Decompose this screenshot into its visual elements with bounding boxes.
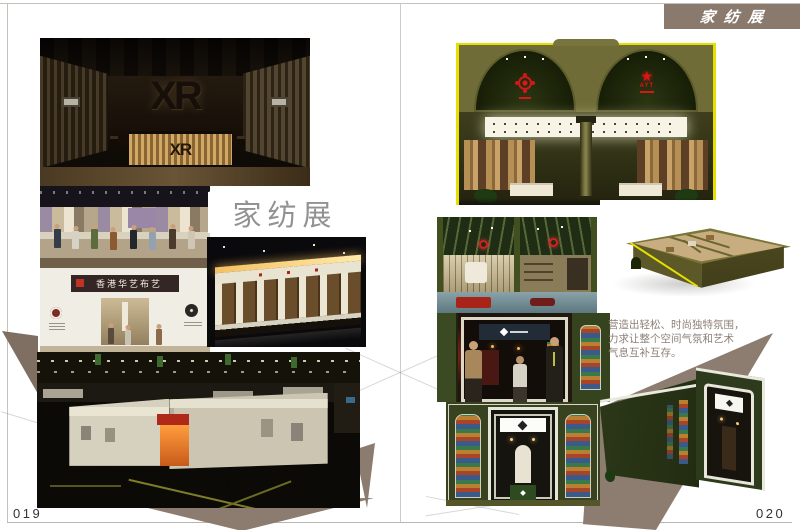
brand-logo-right: [185, 304, 198, 317]
visitor-figure: [546, 346, 563, 402]
entrance-arch: [704, 383, 754, 487]
dark-ceiling: [40, 186, 210, 207]
model-arch-opening: [631, 257, 641, 269]
booth-top-band: [169, 399, 327, 407]
wall-graphics: [261, 419, 273, 437]
hall-lights: [223, 246, 225, 248]
green-wall-left: [437, 313, 458, 402]
logo-caption-lines: [184, 322, 202, 323]
arch-star-label: AYT: [598, 83, 695, 89]
visitor: [91, 229, 98, 249]
right-page-number: 020: [756, 506, 785, 521]
arch-booth-render: ★ AYT: [445, 33, 727, 205]
visitor-head: [73, 226, 78, 231]
tiny-visitors: [134, 471, 137, 479]
section-title-text: 家纺展: [232, 192, 337, 234]
model-furniture: [666, 247, 674, 252]
emblem-caption-marks: [640, 91, 654, 93]
fan-beams-right: [517, 217, 597, 255]
floor: [40, 258, 210, 268]
wall-poster-strip: [667, 405, 673, 460]
display-tables: [40, 232, 210, 239]
visitor-head: [469, 341, 478, 350]
interior-drape: [722, 427, 736, 472]
visitor-head: [156, 324, 161, 329]
visitor-head: [189, 226, 194, 231]
hanging-banners: [95, 354, 101, 365]
stained-glass-left: [455, 414, 481, 497]
ceiling-lights: [40, 191, 210, 194]
red-emblem-icon: [518, 76, 532, 90]
red-emblem-icon: [479, 240, 488, 249]
catalog-spread: 家纺展 XR XR: [0, 0, 800, 530]
visitor-head: [92, 224, 97, 229]
entrance-red-sign: [157, 414, 189, 425]
hall-overview-photo: [37, 352, 360, 508]
visitor: [130, 230, 137, 249]
visitor-figure: [465, 350, 482, 402]
booth-volume-left: [69, 399, 169, 466]
diamond-logo-icon: [500, 328, 508, 336]
description-line: 气息互补互存。: [608, 346, 746, 360]
reception-desk-left: [510, 183, 553, 196]
plant: [605, 470, 615, 482]
xr-desk-logo: XR: [170, 140, 192, 160]
white-display: [465, 262, 488, 283]
visitor-head: [126, 325, 131, 330]
arch-spotlights: [627, 58, 629, 60]
xr-wall-logo: XR: [121, 74, 229, 119]
visitor: [125, 330, 131, 345]
distant-lit-booths: [43, 389, 83, 398]
booth-volume-right: [169, 393, 327, 469]
wood-floor: [40, 167, 310, 186]
stool-right: [237, 136, 245, 153]
central-column: [580, 122, 593, 196]
fan-beams-left: [437, 217, 517, 255]
visitor-head: [150, 227, 155, 232]
visitor-head: [170, 224, 175, 229]
perspective-booth-render: [600, 371, 765, 495]
description-line: 营造出轻松、时尚独特氛围，: [608, 318, 746, 332]
reception-desk-right: [619, 183, 662, 196]
arch-signboard: [715, 394, 743, 414]
portal-frame: [488, 407, 559, 506]
visitor-figure: [513, 364, 527, 402]
visitor: [108, 328, 114, 344]
visitor-head: [109, 323, 114, 328]
reception-desk: XR: [129, 131, 232, 165]
display-room-right: [520, 255, 590, 293]
booth-body: [215, 255, 361, 338]
visitor: [156, 329, 162, 345]
white-gown-display: [515, 445, 532, 482]
floor-path-line: [50, 485, 121, 487]
booth-interior: [459, 112, 712, 205]
brand-logo-left: [50, 307, 62, 319]
visitor-head: [55, 224, 60, 229]
visitor: [110, 232, 117, 250]
visitor-head: [111, 227, 116, 232]
aerial-model-render: [600, 200, 795, 318]
left-rule: [7, 3, 8, 523]
arch-left: [474, 49, 575, 113]
wall-lightbox-right: [270, 97, 288, 107]
sign-text-mark: [510, 331, 528, 333]
visitor: [54, 229, 61, 248]
logo-caption-lines: [49, 323, 65, 324]
stained-glass-column: [580, 325, 601, 389]
booth-long-wall: [600, 378, 699, 487]
booth-top-band: [69, 407, 169, 416]
ceiling-light-row: [37, 371, 360, 373]
star-icon: ★: [598, 69, 695, 83]
shelf-lines: [524, 263, 552, 265]
frieze-logos: [259, 274, 262, 277]
booth-interior-photo: [437, 217, 597, 313]
fabric-display-wall: [40, 207, 210, 233]
description-text: 营造出轻松、时尚独特氛围， 力求让整个空间气氛和艺术 气息互补互存。: [608, 318, 746, 360]
gutter-rule: [400, 3, 401, 522]
screen: [346, 397, 355, 403]
xr-booth-render: XR XR: [40, 38, 310, 186]
warm-lights: [491, 345, 494, 348]
white-booth-render: [207, 237, 366, 347]
left-page-number: 019: [13, 506, 42, 521]
facade-render: [446, 402, 600, 506]
right-slat-wall: [243, 56, 311, 168]
ceiling-light-row: [37, 360, 360, 362]
visitor-head: [131, 225, 136, 230]
green-counter: [510, 485, 536, 501]
description-line: 力求让整个空间气氛和艺术: [608, 332, 746, 346]
crest-ornament: [553, 39, 619, 46]
warm-lights: [720, 417, 723, 420]
counter-logo-icon: [520, 490, 526, 496]
wall-poster-strip: [679, 400, 688, 463]
visitor: [188, 231, 195, 249]
visitor-head: [550, 337, 559, 346]
side-wall: [334, 383, 360, 433]
stool-left: [110, 136, 118, 153]
chapter-tab: 家纺展: [664, 4, 800, 29]
visitor: [149, 232, 156, 250]
diamond-logo-icon: [518, 420, 528, 430]
lanyard: [553, 352, 555, 366]
entrance-warm-glow: [160, 425, 189, 466]
booth-frame: ★ AYT: [456, 43, 715, 205]
bottom-rule: [7, 522, 792, 523]
exhibition-crowd-photo: [40, 186, 210, 268]
wall-lightbox-left: [62, 97, 80, 107]
arch-right: ★ AYT: [596, 49, 697, 113]
drape-display: [480, 350, 498, 385]
red-ottoman: [530, 298, 556, 307]
diamond-logo-icon: [725, 400, 732, 407]
display-room-left: [443, 255, 513, 293]
storefront-signboard: 香港华艺布艺: [71, 275, 180, 293]
visitor: [169, 229, 176, 249]
floor-path-line: [129, 478, 262, 508]
portal-signboard: [500, 418, 547, 433]
floor-strip: [446, 500, 600, 506]
storefront-photo: 香港华艺布艺: [40, 268, 210, 352]
arch-spotlights: [506, 58, 508, 60]
spot-lights: [469, 230, 471, 232]
emblem-caption-marks: [519, 97, 531, 99]
stained-glass-right: [565, 414, 591, 497]
left-slat-wall: [40, 56, 108, 168]
wall-graphics: [81, 426, 91, 440]
visitor: [72, 231, 79, 249]
hall-ceiling: [37, 352, 360, 383]
dark-shelving: [567, 258, 588, 289]
entrance-visitors-photo: [437, 313, 610, 402]
red-seal-mark: [76, 279, 84, 287]
booth-entrance-face: [696, 368, 765, 491]
entrance-signboard: [479, 324, 550, 340]
section-title: 家纺展: [208, 192, 362, 233]
red-sofa: [456, 297, 491, 309]
chapter-tab-label: 家纺展: [690, 6, 773, 27]
storefront-sign-text: 香港华艺布艺: [88, 277, 162, 290]
